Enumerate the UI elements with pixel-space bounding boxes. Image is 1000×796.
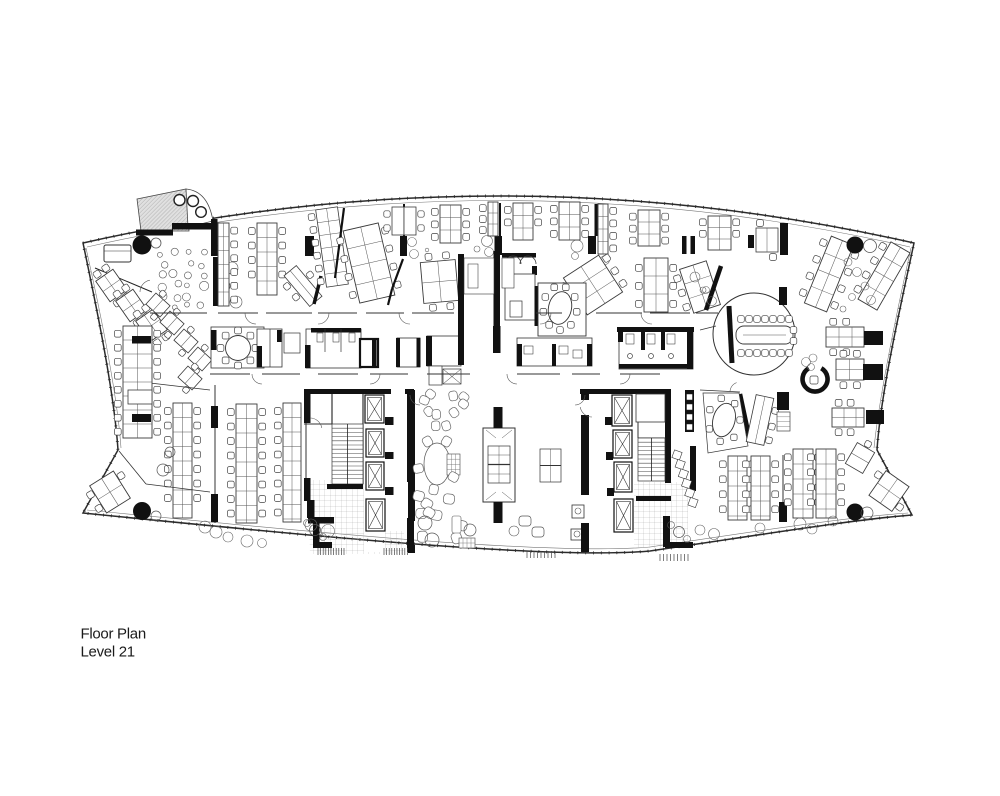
svg-text:Floor Plan: Floor Plan [81,626,146,643]
svg-text:Level 21: Level 21 [81,644,135,661]
